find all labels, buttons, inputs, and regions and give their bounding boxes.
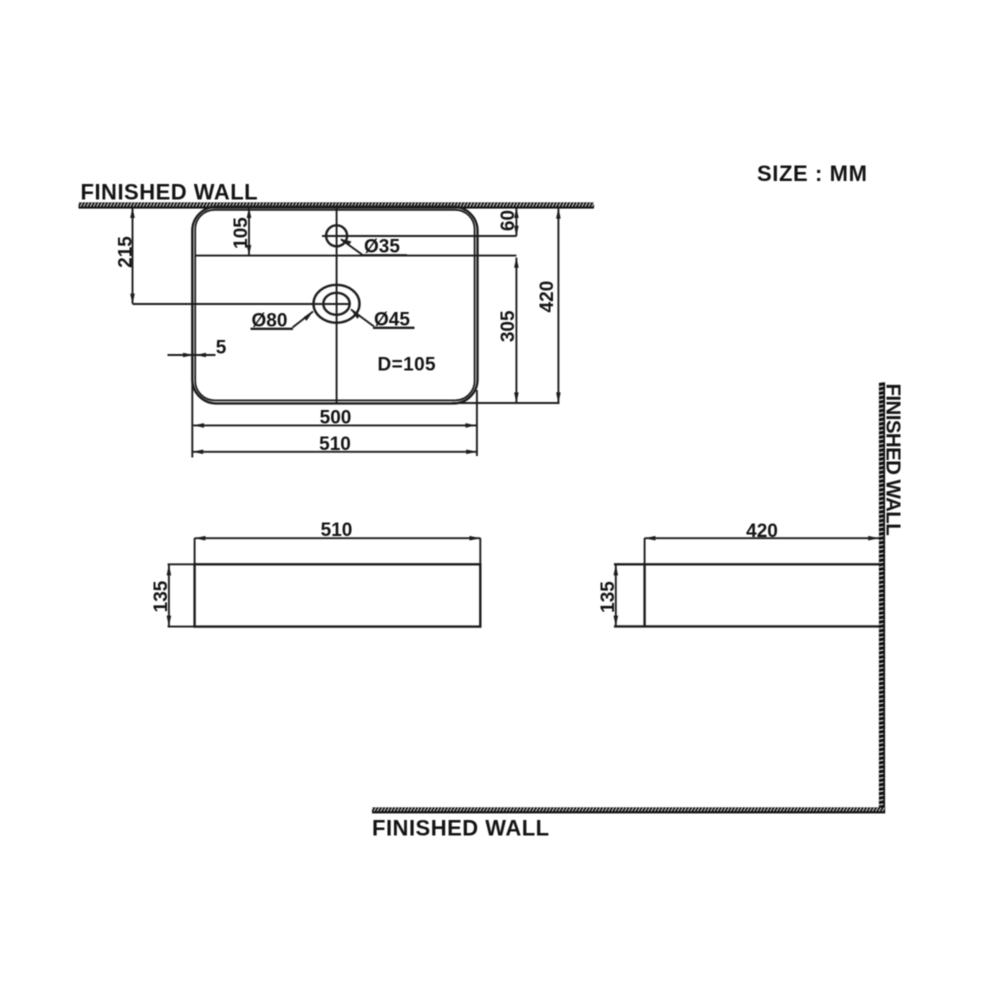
- svg-text:215: 215: [116, 236, 137, 268]
- svg-text:305: 305: [498, 310, 519, 342]
- svg-text:510: 510: [321, 520, 353, 541]
- svg-text:420: 420: [746, 521, 778, 542]
- svg-text:135: 135: [598, 581, 619, 613]
- svg-text:FINISHED WALL: FINISHED WALL: [882, 384, 905, 536]
- svg-text:FINISHED WALL: FINISHED WALL: [372, 816, 550, 841]
- svg-text:420: 420: [537, 281, 558, 313]
- svg-text:135: 135: [151, 580, 172, 612]
- svg-text:510: 510: [319, 434, 351, 455]
- svg-text:FINISHED WALL: FINISHED WALL: [81, 180, 259, 205]
- svg-text:5: 5: [216, 338, 227, 359]
- svg-text:60: 60: [498, 210, 519, 231]
- svg-text:SIZE : MM: SIZE : MM: [757, 161, 868, 186]
- svg-text:D=105: D=105: [378, 355, 437, 376]
- svg-text:500: 500: [320, 407, 352, 428]
- svg-text:105: 105: [231, 217, 252, 249]
